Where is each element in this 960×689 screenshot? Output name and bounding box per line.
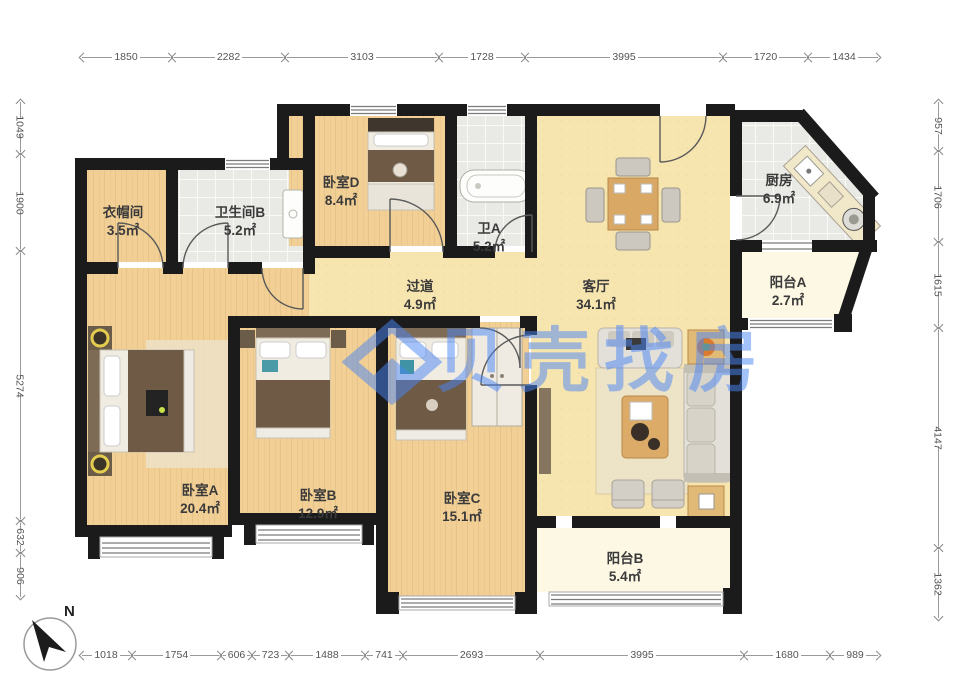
compass-icon: N (8, 594, 92, 684)
room-label-bedroom-b: 卧室B12.9㎡ (298, 487, 338, 523)
room-label-balcony-b: 阳台B5.4㎡ (607, 550, 644, 586)
window-bedroom-c (399, 596, 515, 610)
side-table (688, 486, 724, 518)
bathtub (460, 170, 532, 202)
window-cloakroom (225, 158, 270, 170)
room-label-bedroom-d: 卧室D8.4㎡ (323, 174, 360, 210)
window-top-bathroom-a (467, 104, 507, 116)
compass-needle (32, 620, 66, 662)
room-label-hallway: 过道4.9㎡ (404, 278, 436, 314)
window-balcony-b (549, 592, 723, 606)
sink-bathroom-b (283, 190, 303, 238)
sliding-door-kitchen-balcony (762, 243, 812, 249)
bed-bedroom-a (88, 326, 238, 476)
tv-bench (539, 388, 551, 474)
bed-bedroom-b (240, 328, 346, 438)
room-label-balcony-a: 阳台A2.7㎡ (770, 274, 807, 310)
room-label-bedroom-a: 卧室A20.4㎡ (180, 482, 220, 518)
bay-window-bedroom-a (100, 537, 212, 557)
room-label-bathroom-a: 卫A5.2㎡ (473, 220, 505, 256)
room-label-kitchen: 厨房6.9㎡ (763, 172, 795, 208)
coffee-table (622, 396, 668, 458)
bed-bedroom-d (368, 118, 434, 210)
compass-north-label: N (64, 603, 75, 620)
room-label-cloakroom: 衣帽间3.5㎡ (103, 204, 144, 240)
floorplan-page: 贝壳找房 N 1850 2282 3103 1728 3995 1720 143… (0, 0, 960, 689)
floor-plan: 贝壳找房 (0, 0, 960, 689)
room-label-bedroom-c: 卧室C15.1㎡ (442, 490, 482, 526)
bay-window-bedroom-b (256, 525, 362, 543)
brand-watermark-text: 贝壳找房 (436, 322, 772, 400)
room-label-living-room: 客厅34.1㎡ (576, 278, 616, 314)
room-label-bathroom-b: 卫生间B5.2㎡ (215, 204, 265, 240)
window-top-bedroom-d (350, 104, 397, 116)
